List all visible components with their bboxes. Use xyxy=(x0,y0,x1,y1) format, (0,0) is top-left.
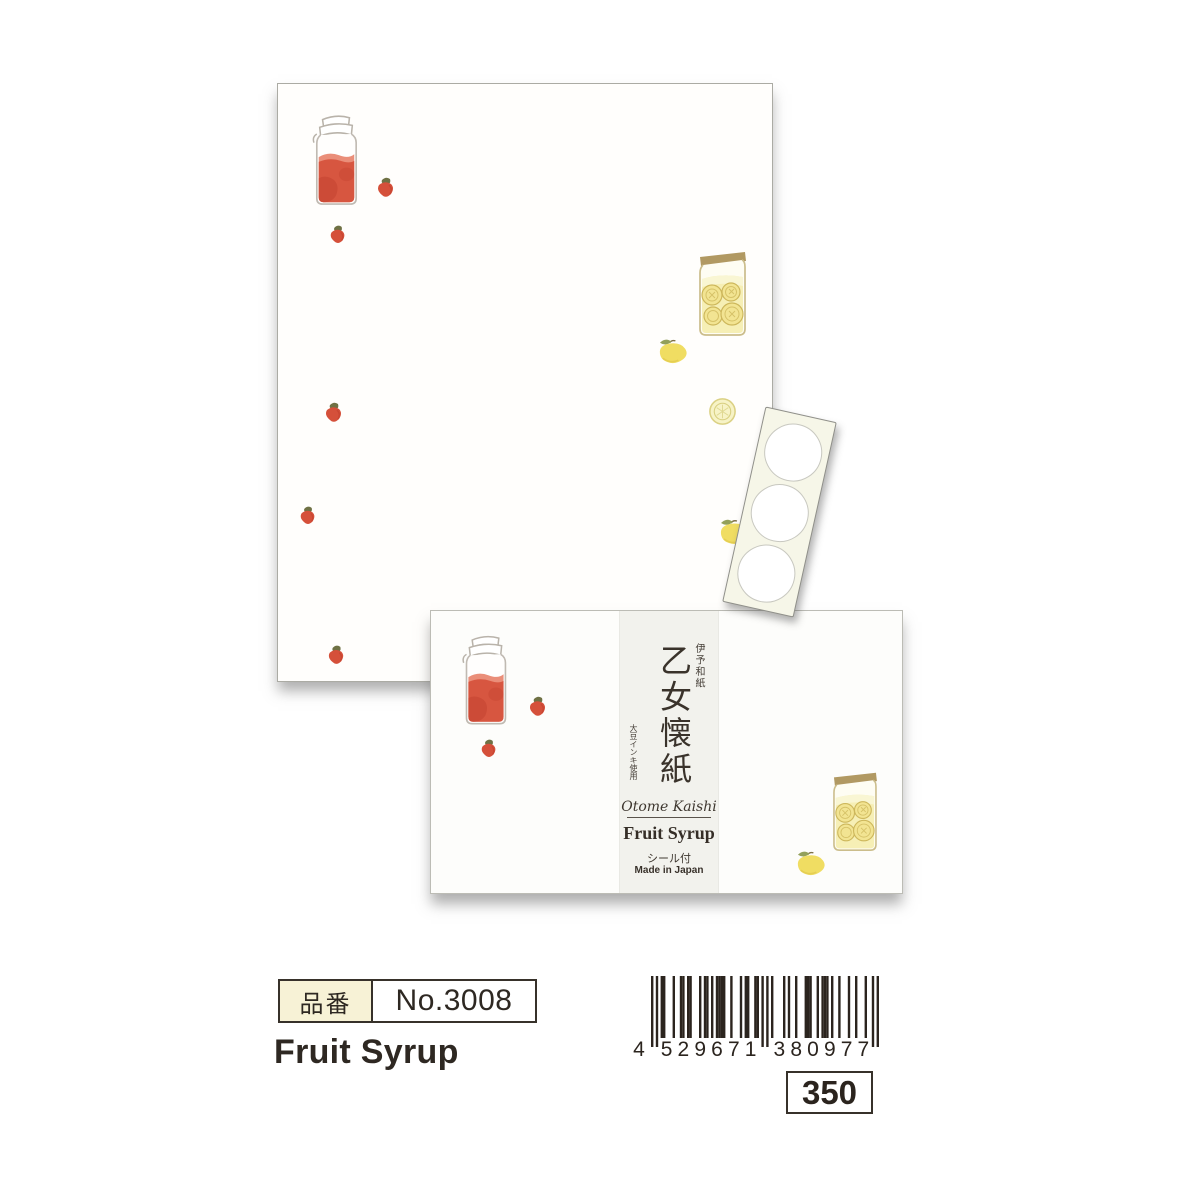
band-seal-note: シール付 xyxy=(619,850,719,866)
lemon-icon xyxy=(656,336,689,365)
kaishi-sheet xyxy=(277,83,773,682)
lemon-syrup-jar-icon xyxy=(825,769,884,853)
strawberry-icon xyxy=(479,738,499,760)
round-sticker xyxy=(759,418,828,487)
strawberry-icon xyxy=(527,695,549,719)
band-ink-note: 大豆インキ使用 xyxy=(628,724,639,780)
lemon-syrup-jar-icon xyxy=(691,248,753,338)
round-sticker xyxy=(732,539,801,608)
svg-text:6: 6 xyxy=(711,1038,723,1061)
band-line-name: Fruit Syrup xyxy=(619,823,719,844)
strawberry-icon xyxy=(298,505,318,527)
svg-text:9: 9 xyxy=(694,1038,706,1061)
strawberry-icon xyxy=(323,401,345,425)
item-number-value: No.3008 xyxy=(373,981,535,1021)
product-name: Fruit Syrup xyxy=(274,1033,459,1072)
strawberry-syrup-jar-icon xyxy=(306,111,366,207)
strawberry-icon xyxy=(375,176,397,200)
band-origin: Made in Japan xyxy=(619,865,719,876)
strawberry-syrup-jar-icon xyxy=(457,631,514,727)
svg-text:8: 8 xyxy=(790,1038,802,1061)
price-value: 350 xyxy=(802,1074,857,1112)
item-number-box: 品番 No.3008 xyxy=(278,979,537,1023)
strawberry-icon xyxy=(326,644,347,667)
band-divider xyxy=(627,817,711,818)
band-romaji: Otome Kaishi xyxy=(619,799,719,815)
lemon-icon xyxy=(794,848,827,877)
svg-text:9: 9 xyxy=(824,1038,836,1061)
svg-text:3: 3 xyxy=(774,1038,786,1061)
lemon-slice-icon xyxy=(707,396,738,427)
svg-text:1: 1 xyxy=(745,1038,757,1061)
product-package: 伊予和紙 乙女懐紙 大豆インキ使用 Otome Kaishi Fruit Syr… xyxy=(430,610,903,894)
ean13-barcode: 4529671380977 xyxy=(631,976,881,1062)
svg-text:7: 7 xyxy=(858,1038,870,1061)
item-number-label: 品番 xyxy=(280,981,373,1021)
strawberry-icon xyxy=(328,224,348,246)
band-title: 乙女懐紙 xyxy=(651,644,697,788)
svg-text:7: 7 xyxy=(728,1038,740,1061)
product-showcase: 伊予和紙 乙女懐紙 大豆インキ使用 Otome Kaishi Fruit Syr… xyxy=(0,0,1200,1200)
svg-text:0: 0 xyxy=(807,1038,819,1061)
svg-text:4: 4 xyxy=(633,1038,645,1061)
svg-text:7: 7 xyxy=(841,1038,853,1061)
svg-text:5: 5 xyxy=(661,1038,673,1061)
package-band: 伊予和紙 乙女懐紙 大豆インキ使用 Otome Kaishi Fruit Syr… xyxy=(619,611,719,893)
price-box: 350 xyxy=(786,1071,873,1114)
svg-text:2: 2 xyxy=(678,1038,690,1061)
round-sticker xyxy=(745,478,814,547)
